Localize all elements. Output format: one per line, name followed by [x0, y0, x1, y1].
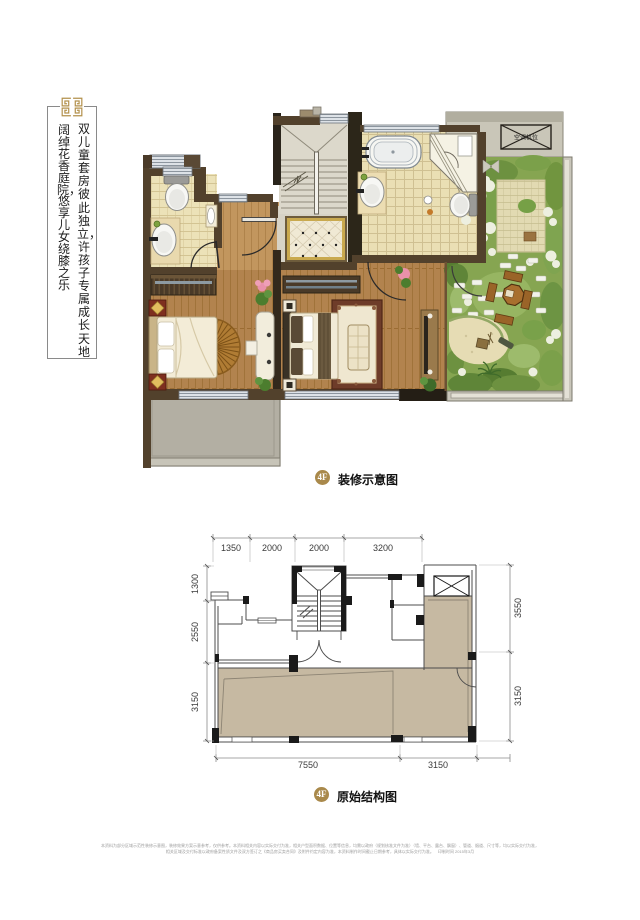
svg-text:2000: 2000	[309, 543, 329, 553]
svg-text:2000: 2000	[262, 543, 282, 553]
svg-text:3550: 3550	[513, 598, 523, 618]
svg-text:3150: 3150	[513, 686, 523, 706]
svg-text:1300: 1300	[190, 574, 200, 594]
svg-text:1350: 1350	[221, 543, 241, 553]
svg-text:3150: 3150	[190, 692, 200, 712]
svg-text:7550: 7550	[298, 760, 318, 770]
svg-text:空调机位: 空调机位	[514, 134, 538, 142]
svg-text:2550: 2550	[190, 622, 200, 642]
svg-text:3150: 3150	[428, 760, 448, 770]
svg-text:3200: 3200	[373, 543, 393, 553]
